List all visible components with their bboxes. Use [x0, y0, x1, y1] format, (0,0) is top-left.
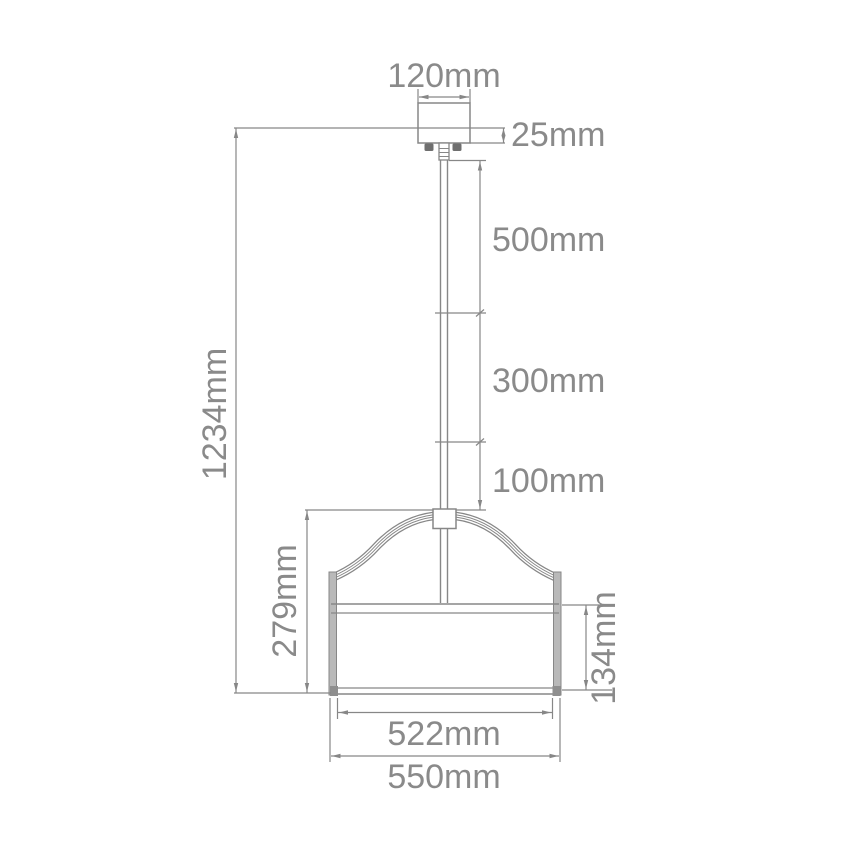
arrow-overall-bottom: [234, 683, 238, 692]
dim-label-rod-section-top: 500mm: [492, 223, 605, 257]
ceiling-canopy: [418, 103, 470, 143]
arrow-inner-left: [339, 710, 348, 714]
shade-rim-left: [329, 572, 337, 695]
arrow-frame-top: [305, 511, 309, 520]
dim-label-canopy-width: 120mm: [387, 59, 500, 93]
arrow-inner-right: [542, 710, 551, 714]
rod-coupler: [439, 143, 449, 160]
arrow-rod-bottom: [478, 500, 482, 509]
arrow-overall-top: [234, 129, 238, 138]
shade-arm-right: [456, 516, 555, 577]
canopy-screw-left: [425, 144, 434, 152]
dim-label-rod-section-middle: 300mm: [492, 364, 605, 398]
dim-label-frame-height: 279mm: [268, 544, 302, 657]
dim-label-overall-height: 1234mm: [198, 348, 232, 480]
arrow-canopy-height-top: [502, 129, 506, 136]
shade-drum: [329, 572, 561, 696]
dim-label-shade-outer-width: 550mm: [387, 760, 500, 794]
dimension-diagram: 120mm 25mm 500mm 300mm 100mm 1234mm 279m…: [0, 0, 868, 868]
arrow-outer-right: [550, 754, 559, 758]
shade-arm-left: [334, 516, 433, 577]
dim-label-rod-section-bottom: 100mm: [492, 464, 605, 498]
arrow-canopy-width-left: [419, 95, 429, 99]
arrow-canopy-height-bottom: [502, 136, 506, 143]
dimension-arrowheads: [234, 95, 588, 758]
shade-rim-right: [554, 572, 562, 695]
arrow-canopy-width-right: [460, 95, 470, 99]
drum-corner-right: [553, 686, 561, 696]
dim-label-shade-inner-width: 522mm: [387, 717, 500, 751]
drum-corner-left: [330, 686, 338, 696]
shade-hub: [433, 509, 456, 529]
canopy-screw-right: [453, 144, 462, 152]
arrow-rod-top: [478, 162, 482, 171]
arrow-frame-bottom: [305, 683, 309, 692]
dim-label-canopy-height: 25mm: [511, 118, 605, 152]
arrow-outer-left: [332, 754, 341, 758]
suspension-rod: [441, 160, 448, 603]
dim-label-shade-height: 134mm: [587, 591, 621, 704]
